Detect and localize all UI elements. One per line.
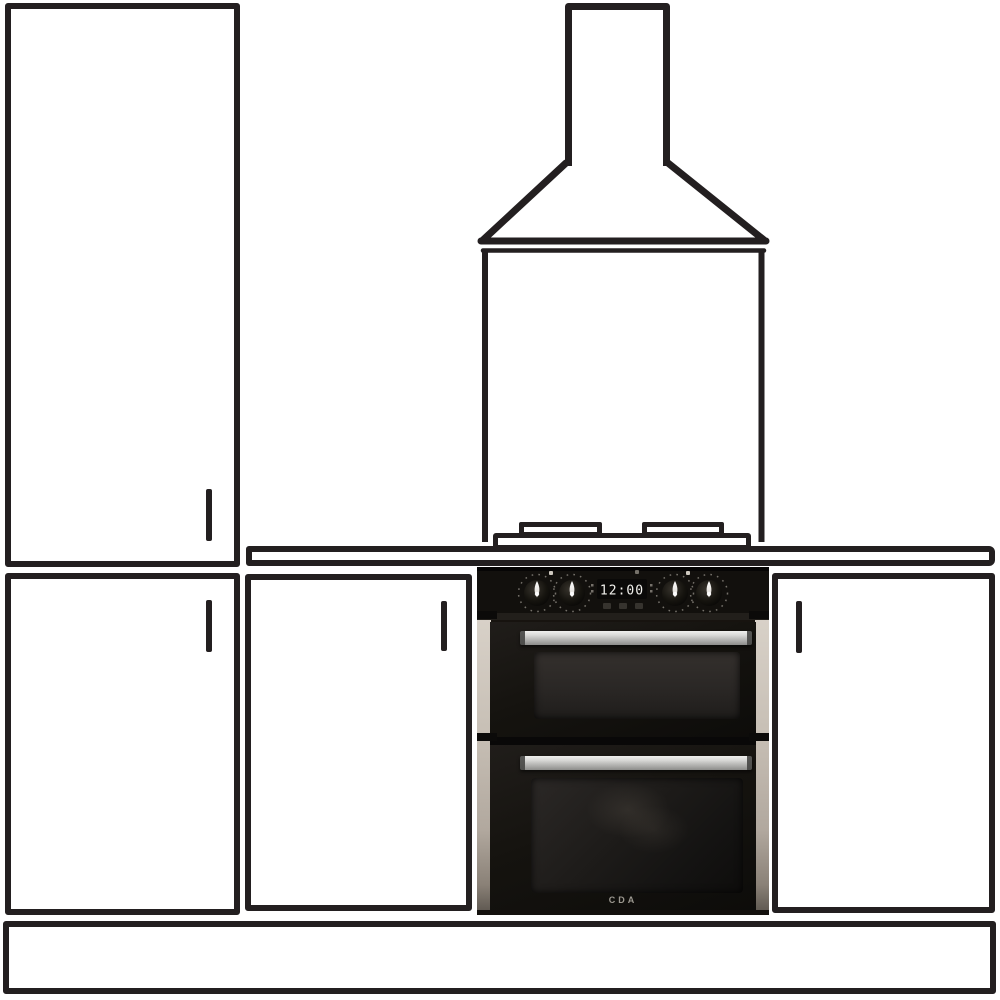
- kitchen-line-drawing: 12:00 CDA: [0, 0, 1000, 1000]
- oven-door-divider: [490, 737, 756, 745]
- oven-hinge-tab: [749, 611, 769, 619]
- tall-cabinet: [5, 3, 240, 567]
- base-cabinet-left: [5, 573, 240, 915]
- oven-side-trim-left: [477, 613, 491, 915]
- panel-indicator-icon: [686, 571, 690, 575]
- hob-pan-support-right: [642, 522, 724, 537]
- top-oven-door-handle: [520, 631, 752, 645]
- base-cabinet-right: [772, 573, 995, 913]
- top-oven-door-glass: [534, 652, 740, 719]
- oven-control-panel: 12:00: [477, 567, 769, 620]
- panel-indicator-icon: [549, 571, 553, 575]
- plinth: [3, 921, 996, 994]
- main-oven-door: CDA: [490, 745, 756, 910]
- hood-canopy-left-slope: [483, 163, 566, 240]
- main-oven-door-handle: [520, 756, 752, 770]
- hob-pan-support-left: [519, 522, 602, 537]
- clock-button: [635, 603, 643, 609]
- brand-logo: CDA: [490, 895, 756, 905]
- base-cabinet-right-handle: [796, 601, 802, 653]
- oven-hinge-tab: [477, 733, 497, 741]
- oven-hinge-tab: [749, 733, 769, 741]
- hood-canopy-right-slope: [668, 163, 764, 240]
- base-cabinet-left-handle: [206, 600, 212, 652]
- oven-side-trim-right: [755, 613, 769, 915]
- oven-bottom-strip: [477, 910, 769, 915]
- panel-indicator-icon: [635, 570, 639, 574]
- oven-hinge-tab: [477, 611, 497, 619]
- main-oven-door-glass: [531, 778, 743, 893]
- hood-chimney: [569, 7, 667, 167]
- top-oven-door: [490, 622, 756, 737]
- clock-button: [603, 603, 611, 609]
- tall-cabinet-handle: [206, 489, 212, 541]
- built-under-double-oven: 12:00 CDA: [477, 567, 769, 915]
- oven-clock-display: 12:00: [600, 584, 644, 599]
- base-cabinet-middle-handle: [441, 601, 447, 651]
- clock-button: [619, 603, 627, 609]
- oven-clock: 12:00: [591, 579, 653, 599]
- base-cabinet-middle: [245, 574, 472, 911]
